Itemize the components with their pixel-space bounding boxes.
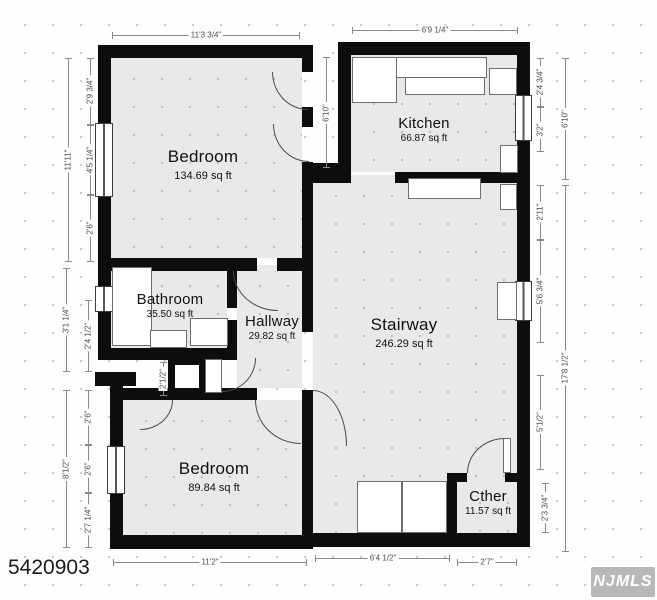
- wall-segment: [302, 162, 313, 332]
- window: [515, 95, 532, 141]
- dimension-label: 11'2": [199, 558, 220, 567]
- dimension-label: 2'6": [84, 460, 93, 477]
- dimension-label: 2'6": [84, 408, 93, 425]
- dimension-label: 2'9 3/4": [86, 76, 95, 107]
- room-label-bedroom-1: Bedroom 134.69 sq ft: [143, 147, 263, 182]
- wall-segment: [237, 388, 257, 400]
- stair-step: [357, 481, 402, 533]
- wall-segment: [338, 42, 530, 55]
- wall-segment: [505, 473, 517, 482]
- dimension-label: 11'3 3/4": [189, 31, 223, 40]
- room-name: Bedroom: [154, 459, 274, 479]
- dimension-label: 6'4 1/2": [368, 554, 399, 563]
- kitchen-fridge: [489, 68, 517, 95]
- dimension-label: 2'4 1/2": [84, 321, 93, 352]
- dimension-label: 2'1/2": [159, 367, 168, 391]
- room-area: 11.57 sq ft: [448, 506, 528, 517]
- dimension-label: 2'7 1/4": [84, 505, 93, 536]
- wall-segment: [98, 58, 111, 125]
- dimension-label: 2'7": [478, 558, 495, 567]
- wall-niche: [497, 282, 517, 320]
- room-name: Stairway: [344, 315, 464, 335]
- kitchen-peninsula: [408, 178, 481, 199]
- dimension-label: 2'4 3/4": [536, 67, 545, 98]
- room-area: 134.69 sq ft: [143, 170, 263, 182]
- room-area: 29.82 sq ft: [212, 331, 332, 342]
- dimension-label: 3'1 1/4": [62, 305, 71, 336]
- wall-segment: [95, 372, 136, 386]
- stair-step: [402, 481, 447, 533]
- dimension-label: 6'10": [322, 102, 331, 124]
- dimension-label: 2'6": [86, 219, 95, 236]
- door-leaf: [205, 359, 222, 393]
- dimension-label: 17'8 1/2": [561, 350, 570, 385]
- wall-segment: [517, 42, 530, 97]
- vanity: [150, 330, 187, 348]
- dimension-label: 2'3 3/4": [541, 493, 550, 524]
- dimension-label: 6'9 1/4": [420, 26, 451, 35]
- dimension-label: 5'6 3/4": [536, 276, 545, 307]
- kitchen-cabinet: [500, 145, 518, 173]
- wall-segment: [302, 390, 313, 535]
- listing-id: 5420903: [8, 556, 90, 580]
- room-label-kitchen: Kitchen 66.87 sq ft: [364, 115, 484, 144]
- dimension-label: 3'2": [536, 121, 545, 138]
- room-area: 89.84 sq ft: [154, 482, 274, 494]
- kitchen-corner-cabinet: [352, 57, 397, 103]
- wall-segment: [98, 195, 111, 272]
- room-name: Kitchen: [364, 115, 484, 132]
- dimension-label: 4'5 1/4": [86, 145, 95, 176]
- wall-segment: [277, 258, 302, 271]
- dimension-label: 8'1/2": [62, 457, 71, 481]
- wall-segment: [302, 58, 313, 72]
- floor-plan: Bedroom 134.69 sq ft Kitchen 66.87 sq ft…: [0, 0, 657, 600]
- dimension-label: 6'10": [561, 108, 570, 130]
- room-label-hallway: Hallway 29.82 sq ft: [212, 313, 332, 342]
- dimension-label: 2'11": [536, 201, 545, 222]
- window: [515, 281, 532, 321]
- room-label-stairway: Stairway 246.29 sq ft: [344, 315, 464, 350]
- wall-segment: [313, 533, 530, 547]
- room-name: Bathroom: [110, 291, 230, 308]
- room-label-bedroom-2: Bedroom 89.84 sq ft: [154, 459, 274, 494]
- dimension-label: 11'11": [64, 148, 73, 173]
- wall-segment: [110, 535, 313, 549]
- wall-segment: [457, 473, 467, 482]
- njmls-logo: NJMLS: [591, 567, 655, 597]
- wall-segment: [110, 386, 123, 448]
- wall-segment: [517, 140, 530, 283]
- wall-segment: [313, 163, 351, 183]
- room-name: Bedroom: [143, 147, 263, 167]
- wall-niche: [500, 184, 517, 210]
- wall-segment: [98, 45, 313, 58]
- room-name: Cther: [448, 488, 528, 505]
- dimension-label: 5'1/2": [536, 410, 545, 434]
- window: [95, 123, 113, 197]
- room-name: Hallway: [212, 313, 332, 330]
- room-label-other: Cther 11.57 sq ft: [448, 488, 528, 517]
- room-area: 246.29 sq ft: [344, 338, 464, 350]
- room-area: 66.87 sq ft: [364, 133, 484, 144]
- kitchen-stove: [405, 77, 485, 95]
- window: [107, 446, 125, 494]
